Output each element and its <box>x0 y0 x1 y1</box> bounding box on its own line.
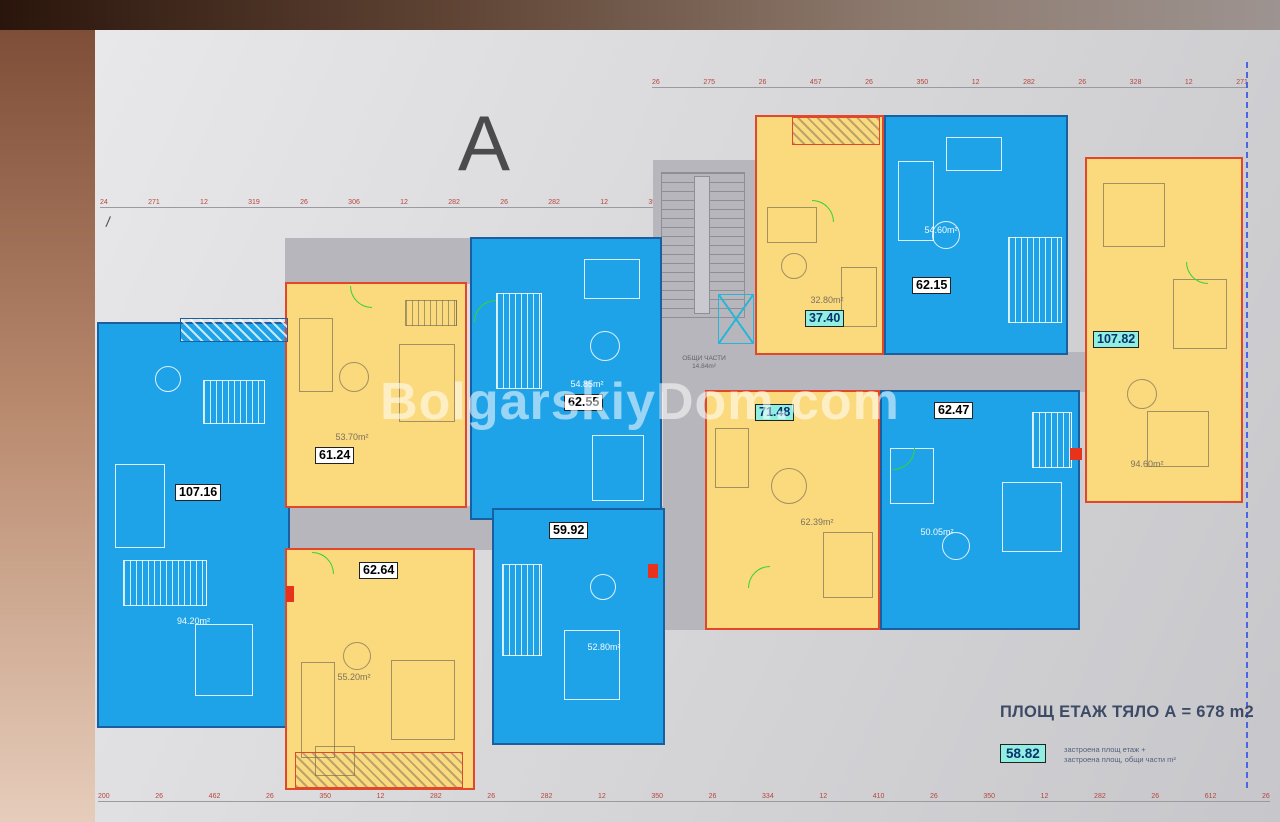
apartment-area-label: 53.70m² <box>297 432 407 442</box>
dimension-row-bottom: 2002646226350122822628212350263341241026… <box>98 788 1270 802</box>
furniture-wardrobe <box>405 300 457 326</box>
building-body-letter: A <box>458 98 510 189</box>
apartment-59-92: 59.92 52.80m² <box>492 508 665 745</box>
apartment-area-label: 50.05m² <box>882 527 992 537</box>
watermark-text: BolgarskiyDom.com <box>280 372 1000 432</box>
dimension-value: 462 <box>209 793 221 800</box>
elevator-shaft-icon <box>718 294 754 344</box>
furniture-table <box>195 624 253 696</box>
dimension-value: 200 <box>98 793 110 800</box>
furniture-bed <box>1173 279 1227 349</box>
summary-note-line2: застроена площ, общи части m² <box>1064 755 1176 764</box>
furniture-bed <box>1103 183 1165 247</box>
dimension-value: 282 <box>1094 793 1106 800</box>
common-area-label-line1: ОБЩИ ЧАСТИ <box>682 355 726 362</box>
dimension-value: 26 <box>1151 793 1159 800</box>
dimension-value: 328 <box>1130 79 1142 86</box>
dimension-value: 457 <box>810 79 822 86</box>
furniture-chair <box>590 331 620 361</box>
unit-area-box: 62.64 <box>359 562 398 579</box>
dimension-value: 12 <box>200 199 208 206</box>
floor-summary-title: ПЛОЩ ЕТАЖ ТЯЛО А = 678 m2 <box>1000 703 1254 722</box>
furniture-dining-table <box>771 468 807 504</box>
wall-accent <box>648 564 658 578</box>
wall-accent <box>1070 448 1082 460</box>
furniture-wardrobe <box>123 560 207 606</box>
furniture-bed <box>1002 482 1062 552</box>
apartment-area-label: 52.80m² <box>554 642 654 652</box>
dimension-value: 271 <box>148 199 160 206</box>
dimension-value: 612 <box>1205 793 1217 800</box>
apartment-area-label: 62.39m² <box>762 517 872 527</box>
dimension-value: 26 <box>500 199 508 206</box>
axis-dashed-line <box>1246 62 1248 788</box>
background-left-strip <box>0 30 95 822</box>
furniture-chair <box>590 574 616 600</box>
furniture-desk <box>767 207 817 243</box>
furniture-chair <box>155 366 181 392</box>
apartment-107-16: 107.16 94.20m² <box>97 322 290 728</box>
wall-accent <box>286 586 294 602</box>
background-top-band <box>0 0 1280 30</box>
dimension-value: 12 <box>598 793 606 800</box>
dimension-value: 26 <box>1262 793 1270 800</box>
furniture-chair <box>343 642 371 670</box>
apartment-area-label: 55.20m² <box>299 672 409 682</box>
apartment-62-15: 54.60m² 62.15 <box>884 115 1068 355</box>
dimension-value: 26 <box>709 793 717 800</box>
furniture-sofa <box>584 259 640 299</box>
dimension-value: 12 <box>1185 79 1193 86</box>
apartment-area-label: 94.60m² <box>1097 459 1197 469</box>
dimension-value: 26 <box>266 793 274 800</box>
dimension-row-left: 242711231926306122822628212350 <box>100 194 660 208</box>
furniture-wardrobe <box>1032 412 1072 468</box>
dimension-value: 26 <box>155 793 163 800</box>
dimension-value: 306 <box>348 199 360 206</box>
unit-area-box: 107.16 <box>175 484 221 501</box>
dimension-value: 282 <box>541 793 553 800</box>
furniture-chair <box>1127 379 1157 409</box>
terrace-hatch <box>180 318 288 342</box>
dimension-value: 282 <box>1023 79 1035 86</box>
dimension-value: 350 <box>319 793 331 800</box>
dimension-row-top: 262752645726350122822632812271 <box>652 74 1248 88</box>
dimension-value: 24 <box>100 199 108 206</box>
unit-area-box: 59.92 <box>549 522 588 539</box>
furniture-chair <box>781 253 807 279</box>
dimension-value: 410 <box>873 793 885 800</box>
furniture-wardrobe <box>502 564 542 656</box>
summary-notes: застроена площ етаж + застроена площ, об… <box>1064 745 1176 765</box>
furniture-wardrobe <box>203 380 265 424</box>
apartment-area-label: 94.20m² <box>99 616 288 626</box>
furniture-table <box>592 435 644 501</box>
corridor-area <box>285 238 470 284</box>
furniture-table <box>564 630 620 700</box>
dimension-value: 350 <box>983 793 995 800</box>
terrace-hatch <box>295 752 463 788</box>
dimension-value: 26 <box>1078 79 1086 86</box>
dimension-value: 26 <box>652 79 660 86</box>
dimension-value: 350 <box>651 793 663 800</box>
dimension-value: 26 <box>300 199 308 206</box>
dimension-value: 282 <box>448 199 460 206</box>
dimension-value: 26 <box>930 793 938 800</box>
furniture-cabinet <box>946 137 1002 171</box>
furniture-wardrobe <box>1008 237 1062 323</box>
furniture-bed <box>115 464 165 548</box>
unit-area-box: 62.15 <box>912 277 951 294</box>
floor-plan-page: A / 262752645726350122822632812271 24271… <box>0 0 1280 822</box>
summary-highlight-value: 58.82 <box>1000 744 1046 763</box>
dimension-value: 282 <box>548 199 560 206</box>
dimension-value: 334 <box>762 793 774 800</box>
apartment-area-label: 32.80m² <box>777 295 877 305</box>
terrace-hatch <box>792 117 880 145</box>
dimension-value: 12 <box>600 199 608 206</box>
dimension-value: 12 <box>377 793 385 800</box>
dimension-value: 12 <box>1041 793 1049 800</box>
unit-area-box: 107.82 <box>1093 331 1139 348</box>
dimension-value: 282 <box>430 793 442 800</box>
apartment-area-label: 54.60m² <box>896 225 986 235</box>
apartment-37-40: 32.80m² 37.40 <box>755 115 884 355</box>
apartment-107-82: 107.82 94.60m² <box>1085 157 1243 503</box>
furniture-sofa <box>715 428 749 488</box>
unit-area-box: 61.24 <box>315 447 354 464</box>
dimension-value: 26 <box>759 79 767 86</box>
unit-area-box: 37.40 <box>805 310 844 327</box>
dimension-value: 12 <box>972 79 980 86</box>
stair-core <box>694 176 710 314</box>
common-area-label-line2: 14.84m² <box>692 363 716 370</box>
dimension-value: 12 <box>819 793 827 800</box>
dimension-value: 26 <box>487 793 495 800</box>
dimension-value: 12 <box>400 199 408 206</box>
furniture-bed <box>823 532 873 598</box>
summary-note-line1: застроена площ етаж + <box>1064 745 1146 754</box>
dimension-value: 275 <box>703 79 715 86</box>
dimension-value: 350 <box>917 79 929 86</box>
dimension-value: 26 <box>865 79 873 86</box>
common-area-label: ОБЩИ ЧАСТИ 14.84m² <box>653 355 755 372</box>
dimension-value: 319 <box>248 199 260 206</box>
